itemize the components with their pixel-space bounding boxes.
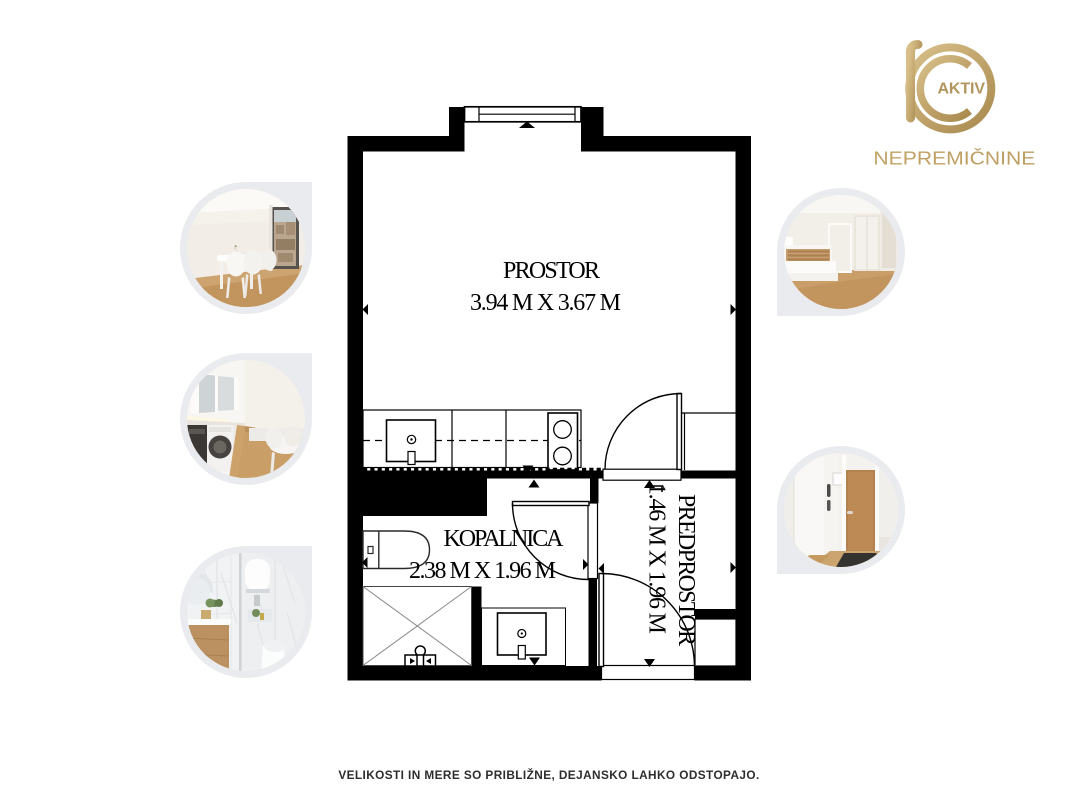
svg-text:1.46 M X 1.96 M: 1.46 M X 1.96 M [644, 483, 670, 634]
svg-text:AKTIV: AKTIV [938, 80, 986, 97]
svg-text:3.94 M X 3.67 M: 3.94 M X 3.67 M [470, 290, 621, 316]
svg-text:PREDPROSTOR: PREDPROSTOR [673, 494, 699, 646]
svg-text:KOPALNICA: KOPALNICA [444, 526, 565, 552]
svg-text:2.38 M X 1.96 M: 2.38 M X 1.96 M [409, 558, 556, 584]
svg-text:PROSTOR: PROSTOR [503, 258, 600, 284]
svg-text:NEPREMIČNINE: NEPREMIČNINE [873, 148, 1035, 169]
